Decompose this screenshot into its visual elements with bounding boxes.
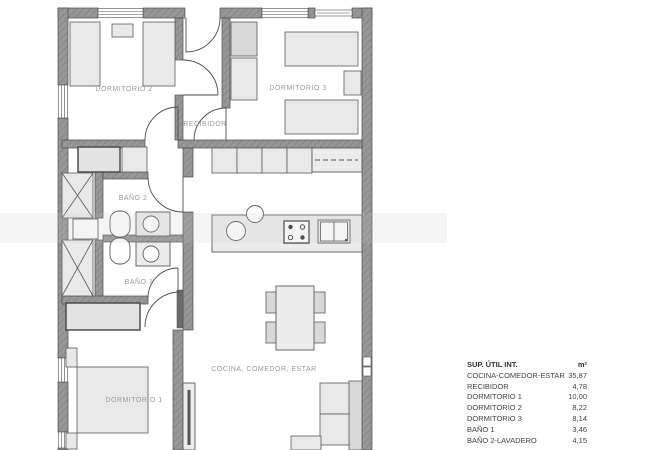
hall-closets [78, 147, 147, 172]
label-cocina: COCINA, COMEDOR, ESTAR [211, 366, 316, 373]
sofa-chaise [291, 436, 321, 450]
bano1-fixtures [110, 238, 170, 266]
table-row: DORMITORIO 2 8,22 [467, 403, 587, 414]
dining-set [266, 286, 325, 350]
dorm1-nightstand-top [66, 348, 77, 367]
shaft-box-1 [62, 173, 93, 218]
row-value: 4,15 [572, 436, 587, 447]
kitchen-furniture [212, 148, 362, 252]
hall-cabinet [122, 147, 147, 172]
area-table-header: SUP. ÚTIL INT. m² [467, 360, 587, 371]
sofa [291, 381, 362, 450]
dormitorio1-door [145, 290, 183, 328]
table-row: COCINA-COMEDOR-ESTAR 35,87 [467, 371, 587, 382]
label-recibidor: RECIBIDOR [183, 121, 226, 128]
dorm1-nightstand-bottom [66, 433, 77, 449]
bano2-door [148, 177, 183, 212]
row-name: DORMITORIO 1 [467, 392, 522, 403]
label-bano2: BAÑO 2 [119, 193, 148, 202]
dorm1-closet [66, 303, 140, 330]
dorm3-bed-bottom [285, 100, 358, 134]
row-name: BAÑO 2-LAVADERO [467, 436, 537, 447]
sink-bowl-2 [227, 222, 246, 241]
table-row: DORMITORIO 1 10,00 [467, 392, 587, 403]
table-row: BAÑO 1 3,46 [467, 425, 587, 436]
label-bano1: BAÑO 1 [125, 277, 154, 286]
dorm3-closet-top [231, 22, 257, 56]
table-header-name: SUP. ÚTIL INT. [467, 360, 518, 371]
shaft-box-2 [62, 240, 93, 296]
hall-door [145, 107, 178, 140]
bano1-toilet-bowl [143, 246, 159, 262]
label-dormitorio2: DORMITORIO 2 [95, 86, 152, 93]
dorm3-bed-top [285, 32, 358, 66]
cooktop [284, 221, 309, 243]
row-name: DORMITORIO 3 [467, 414, 522, 425]
sofa-cushion-2 [320, 414, 349, 445]
row-name: COCINA-COMEDOR-ESTAR [467, 371, 565, 382]
table-row: RECIBIDOR 4,78 [467, 382, 587, 393]
row-name: DORMITORIO 2 [467, 403, 522, 414]
dormitorio2-furniture [70, 22, 175, 86]
window-top-slit [315, 10, 352, 16]
living-window-strip [183, 383, 195, 450]
entrance-door [186, 18, 220, 52]
row-value: 4,78 [572, 382, 587, 393]
bano2-tub [110, 211, 130, 237]
dormitorio3-furniture [231, 22, 361, 134]
row-value: 8,22 [572, 403, 587, 414]
row-value: 3,46 [572, 425, 587, 436]
row-value: 35,87 [568, 371, 587, 382]
dining-table [276, 286, 314, 350]
shaft-small [73, 219, 98, 239]
row-name: BAÑO 1 [467, 425, 495, 436]
kitchen-cabinet-2 [237, 148, 262, 173]
row-name: RECIBIDOR [467, 382, 509, 393]
dorm2-bed-right [143, 22, 175, 86]
window-left-dorm2 [59, 85, 68, 118]
floorplan-page: DORMITORIO 2 DORMITORIO 3 RECIBIDOR BAÑO… [0, 0, 650, 450]
table-row: DORMITORIO 3 8,14 [467, 414, 587, 425]
label-dormitorio3: DORMITORIO 3 [269, 85, 326, 92]
dorm2-bed-left [70, 22, 100, 86]
kitchen-cabinet-3 [262, 148, 287, 173]
window-top-dorm3 [262, 9, 308, 18]
dorm3-nightstand [344, 71, 361, 95]
dormitorio2-door [183, 60, 218, 95]
row-value: 10,00 [568, 392, 587, 403]
hall-closet [78, 147, 120, 172]
table-row: BAÑO 2-LAVADERO 4,15 [467, 436, 587, 447]
bano2-toilet-bowl [143, 216, 159, 232]
window-top-dorm2 [98, 9, 143, 18]
dorm3-closet-bottom [231, 58, 257, 100]
oven [318, 220, 350, 243]
sofa-cushion-1 [320, 383, 349, 414]
area-table: SUP. ÚTIL INT. m² COCINA-COMEDOR-ESTAR 3… [467, 360, 587, 446]
sofa-back [349, 381, 362, 450]
table-header-unit: m² [578, 360, 587, 371]
label-dormitorio1: DORMITORIO 1 [105, 397, 162, 404]
bano1-tub [110, 238, 130, 264]
sink-bowl-1 [247, 206, 264, 223]
dorm2-nightstand [112, 24, 133, 37]
kitchen-cabinet-4 [287, 148, 312, 173]
bano2-fixtures [110, 211, 170, 237]
kitchen-cabinet-1 [212, 148, 237, 173]
row-value: 8,14 [572, 414, 587, 425]
